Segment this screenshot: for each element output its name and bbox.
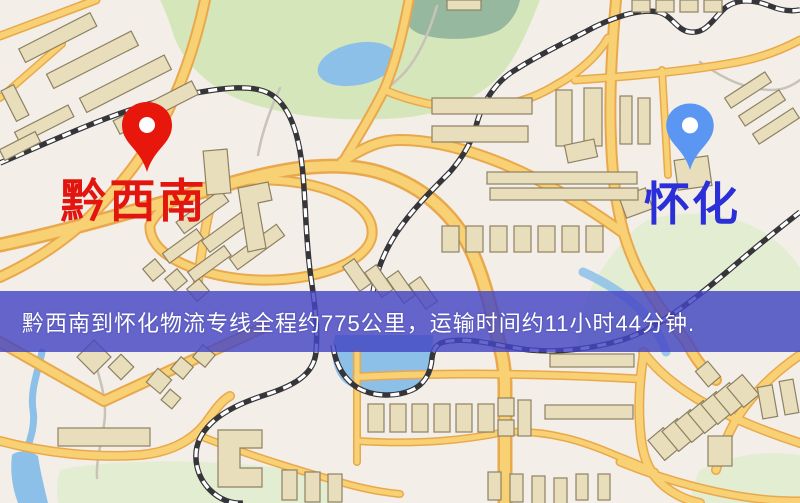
destination-label: 怀化 [644, 178, 740, 230]
origin-label: 黔西南 [61, 175, 208, 227]
map-screenshot: 黔西南 怀化 黔西南到怀化物流专线全程约775公里，运输时间约11小时44分钟. [0, 0, 800, 503]
origin-pin-hole [139, 117, 155, 133]
destination-pin-hole [682, 117, 698, 133]
route-banner-text: 黔西南到怀化物流专线全程约775公里，运输时间约11小时44分钟. [22, 306, 695, 338]
map-canvas: 黔西南 怀化 [0, 0, 800, 503]
route-banner: 黔西南到怀化物流专线全程约775公里，运输时间约11小时44分钟. [0, 291, 800, 352]
